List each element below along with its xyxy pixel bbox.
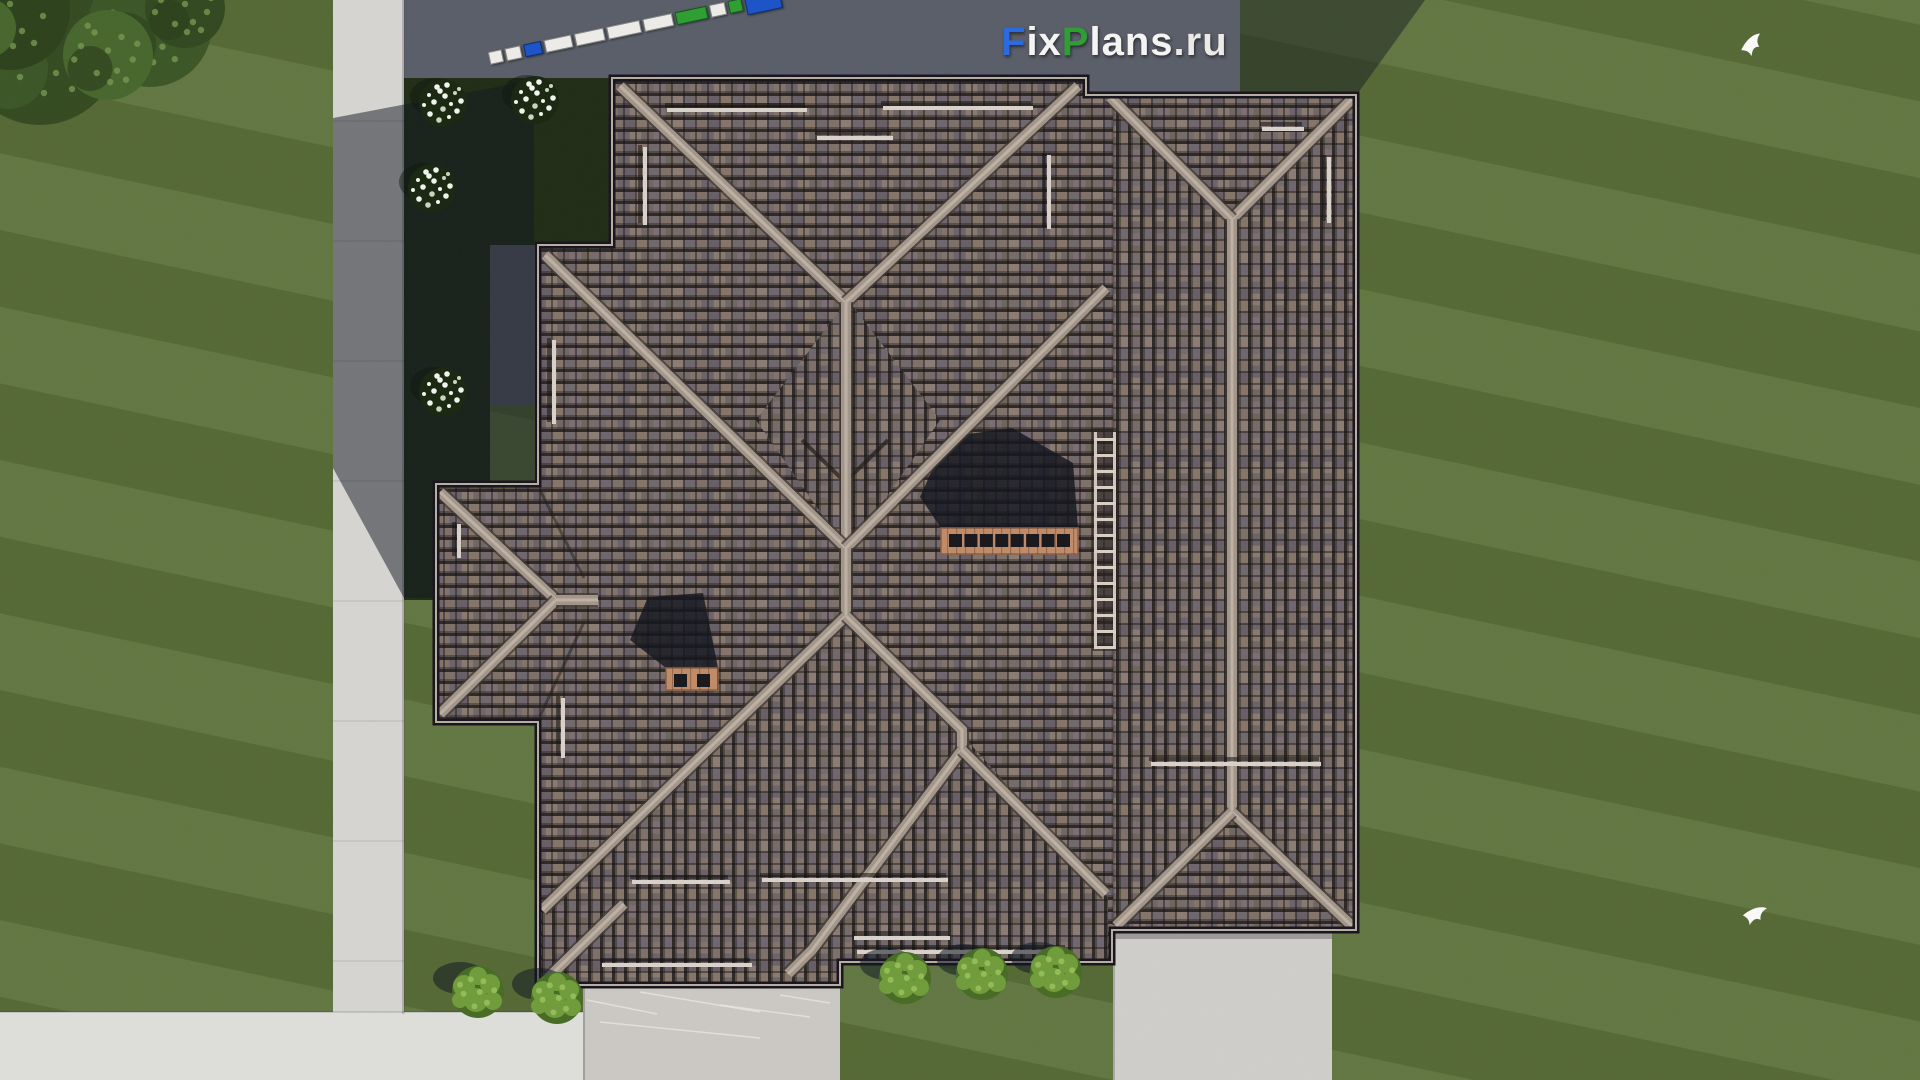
watermark-text-segment: .ru bbox=[1174, 20, 1228, 64]
ruler-segment bbox=[674, 5, 708, 24]
ruler-segment bbox=[642, 13, 674, 32]
ruler-segment bbox=[504, 45, 522, 61]
ruler-segment bbox=[543, 34, 573, 53]
ruler-segment bbox=[574, 27, 606, 46]
ruler-segment bbox=[727, 0, 743, 13]
watermark-text-segment: F bbox=[1001, 20, 1026, 64]
watermark-text-segment: P bbox=[1062, 20, 1090, 64]
scene-render bbox=[0, 0, 1920, 1080]
ruler-segment bbox=[488, 49, 504, 65]
render-canvas: FixPlans.ru bbox=[0, 0, 1920, 1080]
watermark-logo: FixPlans.ru bbox=[1001, 20, 1228, 65]
watermark-text-segment: ix bbox=[1026, 20, 1061, 64]
render-grain bbox=[0, 0, 1920, 1080]
watermark-text-segment: lans bbox=[1089, 20, 1173, 64]
ruler-segment bbox=[523, 40, 543, 56]
ruler-segment bbox=[606, 19, 642, 39]
ruler-segment bbox=[709, 1, 727, 17]
